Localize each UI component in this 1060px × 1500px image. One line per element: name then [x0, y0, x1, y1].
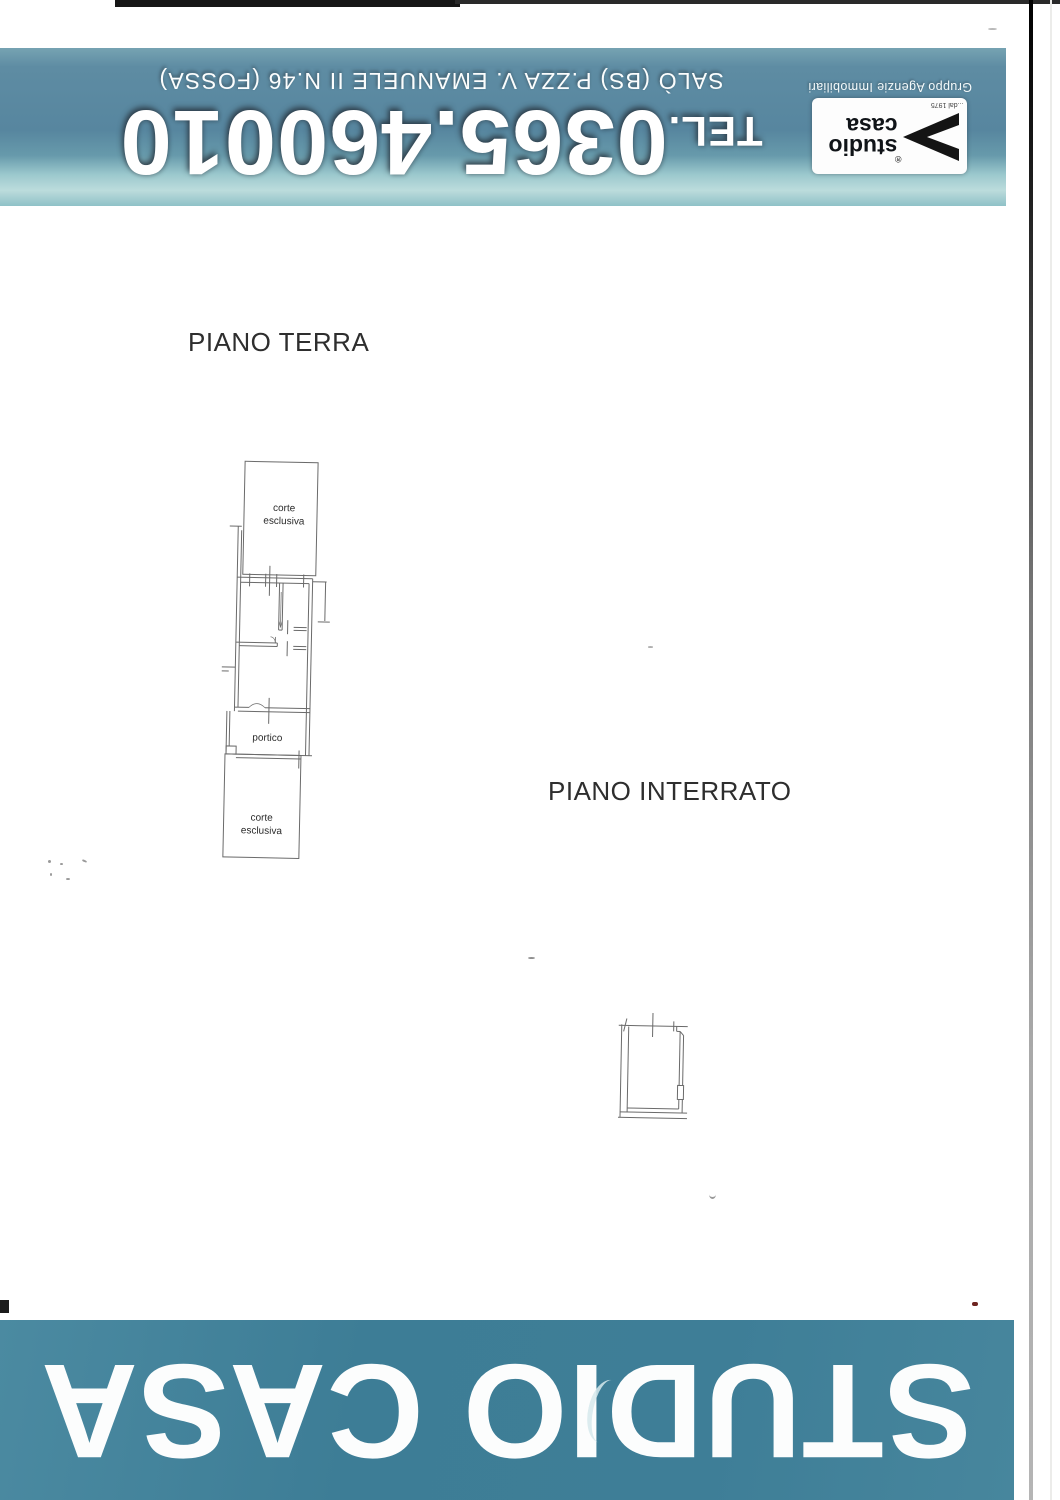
basement-plan: [612, 1005, 698, 1125]
scan-speck: [0, 1300, 9, 1313]
phone-prefix: TEL.: [668, 108, 763, 155]
ground-floor-title: PIANO TERRA: [188, 327, 369, 358]
scan-speck: [48, 860, 51, 863]
scanned-page: studio casa ...dal 1975 ® Gruppo Agenzie…: [0, 0, 1060, 1500]
logo-word-studio: studio: [829, 136, 898, 157]
scan-edge-line: [1050, 0, 1052, 1500]
scan-edge-line: [115, 0, 460, 7]
logo-wordmark: studio casa: [829, 115, 898, 157]
portico-label: portico: [252, 732, 283, 744]
studio-casa-logo: studio casa ...dal 1975 ® Gruppo Agenzie…: [802, 80, 978, 174]
agency-address: SALÒ (BS) P.ZZA V. EMANUELE II N.46 (FOS…: [80, 67, 802, 94]
scan-speck: [648, 646, 653, 648]
scan-speck: [66, 878, 70, 880]
scan-edge-line: [455, 0, 1060, 4]
court-top-label-2: esclusiva: [263, 516, 305, 528]
studio-casa-logo-box: studio casa ...dal 1975 ®: [813, 98, 968, 174]
basement-title: PIANO INTERRATO: [548, 776, 791, 807]
header-banner: studio casa ...dal 1975 ® Gruppo Agenzie…: [0, 48, 1006, 206]
footer-brand-text: STUDIO CASA: [40, 1343, 974, 1477]
scan-speck: [972, 1302, 978, 1306]
footer-banner: STUDIO CASA: [0, 1320, 1014, 1500]
phone-number: 0365.460010: [119, 91, 667, 193]
studio-casa-chevron-icon: [900, 109, 962, 163]
header-banner-content: studio casa ...dal 1975 ® Gruppo Agenzie…: [0, 48, 1006, 206]
scan-speck: [82, 859, 87, 863]
court-bottom-label-2: esclusiva: [241, 825, 283, 837]
ground-floor-plan: corte esclusiva portico corte esclusiva: [216, 449, 341, 869]
scan-speck: [60, 863, 63, 865]
scan-speck: [988, 28, 997, 30]
logo-word-casa: casa: [829, 115, 898, 136]
court-top-label-1: corte: [273, 503, 296, 514]
phone-line: TEL.0365.460010: [80, 98, 802, 185]
logo-group-label: Gruppo Agenzie Immobiliari: [802, 80, 978, 94]
scan-edge-line: [1029, 0, 1033, 1500]
registered-trademark-icon: ®: [895, 154, 902, 164]
scan-speck: [50, 873, 52, 876]
court-bottom-label-1: corte: [250, 812, 273, 823]
scan-speck: [709, 1190, 716, 1199]
scan-speck: [528, 957, 535, 959]
header-contact-block: TEL.0365.460010 SALÒ (BS) P.ZZA V. EMANU…: [0, 67, 802, 187]
logo-since-label: ...dal 1975: [931, 101, 964, 108]
